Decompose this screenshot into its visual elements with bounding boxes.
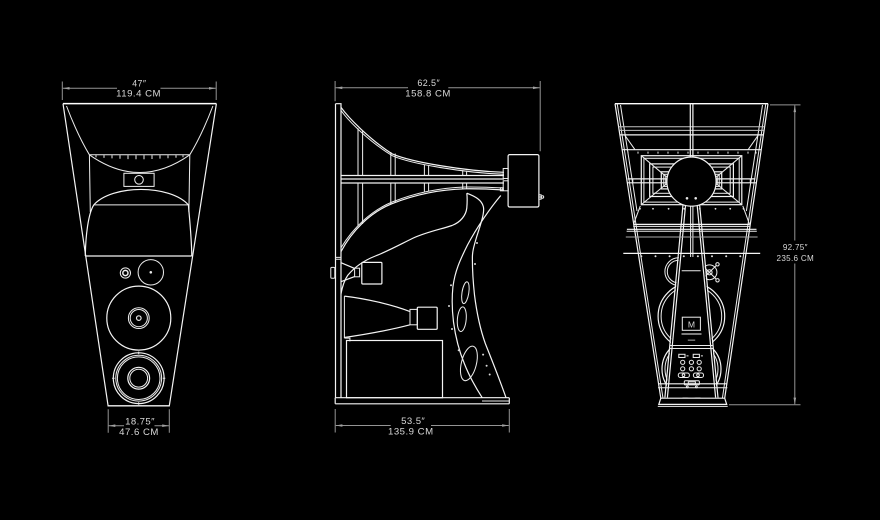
svg-text:47.6 CM: 47.6 CM	[119, 427, 159, 438]
svg-text:135.9 CM: 135.9 CM	[388, 427, 434, 438]
svg-text:119.4 CM: 119.4 CM	[116, 88, 161, 99]
svg-text:62.5″: 62.5″	[417, 78, 440, 88]
svg-text:18.75″: 18.75″	[125, 416, 155, 427]
svg-text:235.6 CM: 235.6 CM	[777, 254, 815, 263]
svg-text:M: M	[688, 319, 695, 329]
svg-text:47″: 47″	[132, 78, 146, 88]
svg-text:158.8 CM: 158.8 CM	[405, 88, 451, 99]
svg-text:53.5″: 53.5″	[401, 416, 425, 427]
svg-text:92.75″: 92.75″	[783, 243, 808, 252]
